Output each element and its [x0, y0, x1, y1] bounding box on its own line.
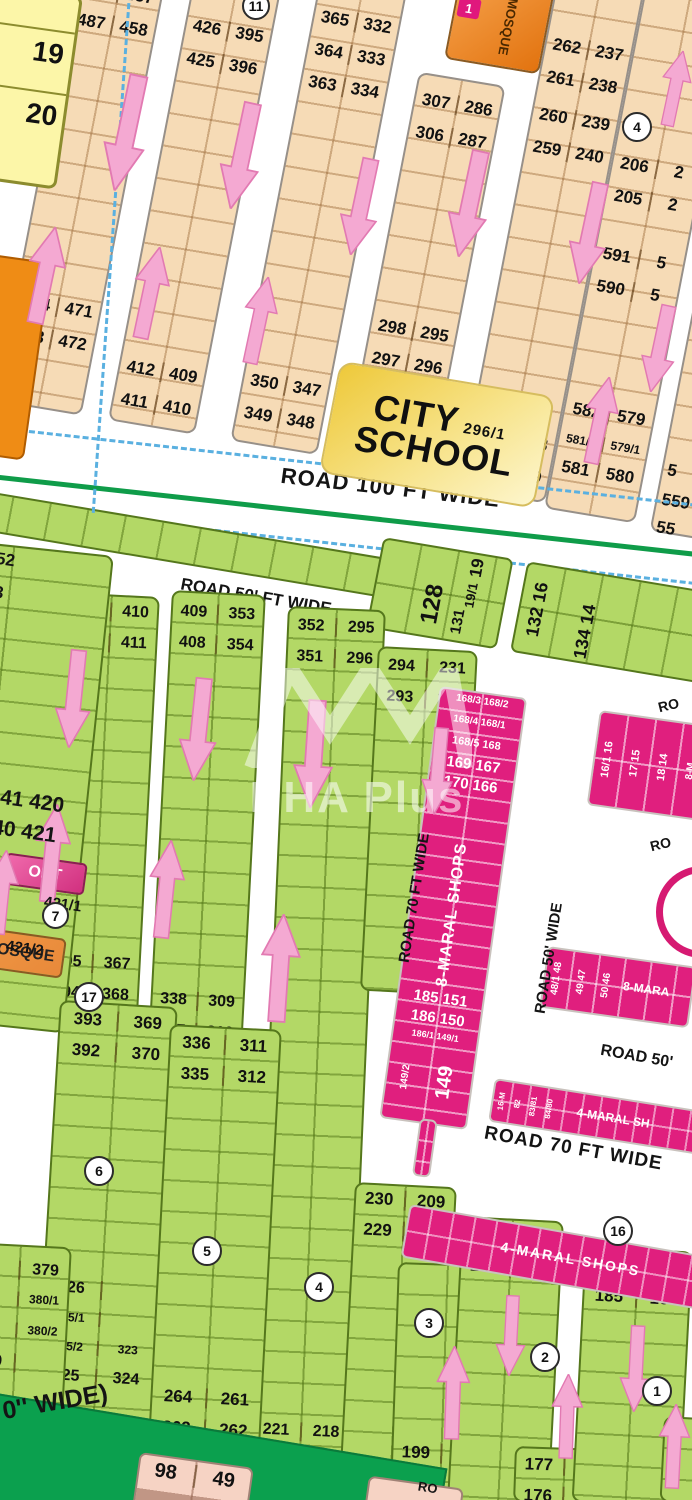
- plot-number: [100, 1281, 161, 1303]
- street-number-badge: 4: [622, 112, 652, 142]
- plot-number: 293: [375, 687, 425, 708]
- plot-number: 294: [376, 656, 426, 677]
- plot-number: 380: [0, 1351, 14, 1372]
- plot-number: [0, 1258, 19, 1279]
- divider: [0, 80, 66, 96]
- plot-number: 370: [114, 1042, 175, 1065]
- plot-number: 352: [287, 616, 336, 637]
- divider: [0, 18, 75, 34]
- plot-number: 311: [223, 1035, 281, 1058]
- plot-number: 230: [354, 1188, 405, 1210]
- plot-number: [13, 1353, 66, 1374]
- arrow-up-icon: [550, 1373, 585, 1460]
- plot-number: 409: [170, 602, 217, 623]
- plot-number: 392: [56, 1039, 115, 1062]
- street-number-badge: 16: [603, 1216, 633, 1246]
- plot-number: 369: [116, 1012, 177, 1035]
- street-number-badge: 4: [304, 1272, 334, 1302]
- plot-number: 261: [205, 1388, 263, 1411]
- arrow-down-icon: [290, 697, 338, 810]
- road-label-fragment: RO: [417, 1479, 439, 1497]
- plot-number: 408: [169, 633, 216, 654]
- street-number-badge: 17: [74, 982, 104, 1012]
- plot-number: 351: [285, 647, 334, 668]
- plot-number: 380/1: [17, 1292, 70, 1309]
- mosque-tag: 1: [456, 0, 482, 20]
- arrow-up-icon: [656, 1403, 692, 1491]
- arrow-up-icon: [256, 913, 304, 1026]
- plot-map: 457 487458 474471 473472 426395 425396 4…: [0, 0, 692, 1500]
- plot-number: 309: [196, 992, 245, 1013]
- plot-number: 379: [18, 1261, 71, 1282]
- arrow-up-icon: [434, 1345, 471, 1441]
- plot-number: 354: [215, 635, 264, 656]
- plot-number: 20: [24, 97, 59, 133]
- road-50-label: ROAD 50': [599, 1042, 674, 1072]
- maral-shops-strip: 48/1 48 49 47 50 46 8-MARA: [539, 946, 692, 1028]
- maral-shops-strip: [412, 1118, 438, 1178]
- plot-number: 19: [31, 35, 66, 71]
- plot-number: 336: [169, 1032, 225, 1055]
- maral-shops-strip: 16/1 16 17 15 18 14 8-M: [587, 710, 692, 821]
- street-number-badge: 5: [192, 1236, 222, 1266]
- plot-number: 367: [91, 954, 141, 975]
- plot-number: 312: [222, 1066, 280, 1089]
- plot-number: 19: [466, 557, 489, 579]
- street-number-badge: 6: [84, 1156, 114, 1186]
- plot-number: 231: [425, 659, 477, 680]
- street-number-badge: 7: [42, 902, 69, 929]
- arrow-down-icon: [494, 1293, 528, 1376]
- plot-number: 353: [216, 604, 265, 625]
- plot-number: 2: [0, 1289, 17, 1306]
- plot-number: 229: [352, 1219, 403, 1241]
- street-number-badge: 1: [642, 1376, 672, 1406]
- street-number-badge: 3: [414, 1308, 444, 1338]
- plot-number: 1: [0, 1320, 16, 1337]
- plot-number: 410: [110, 602, 160, 623]
- plot-number: 295: [335, 618, 386, 639]
- plot-number: 335: [167, 1063, 223, 1086]
- shop-row: 82: [512, 1099, 522, 1109]
- shop-row: 8-M: [684, 762, 692, 781]
- plot-number: 264: [150, 1386, 206, 1409]
- plot-number: 176: [513, 1485, 563, 1500]
- mosque-label: MOSQUE: [495, 0, 521, 56]
- street-number-badge: 2: [530, 1342, 560, 1372]
- plot-number: 52: [0, 549, 16, 571]
- plot-number: 380/2: [15, 1323, 68, 1340]
- shop-row: 149: [431, 1064, 458, 1100]
- plot-number: 411: [108, 633, 158, 654]
